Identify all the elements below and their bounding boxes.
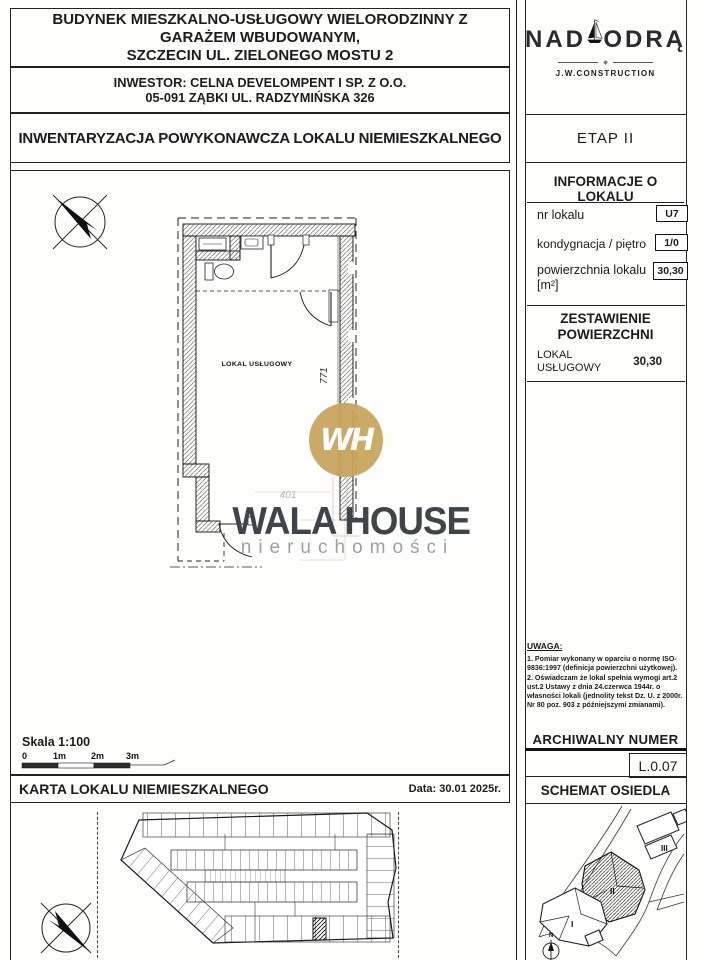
building-iii-label: III — [661, 844, 668, 853]
wh-monogram: WH — [320, 423, 372, 458]
north-label: N — [549, 933, 553, 939]
card-title: KARTA LOKALU NIEMIESZKALNEGO — [19, 781, 269, 797]
document-title-box: INWENTARYZACJA POWYKONAWCZA LOKALU NIEMI… — [10, 113, 510, 163]
card-date: Data: 30.01 2025r. — [409, 783, 501, 795]
info-value-powierzchnia: 30,30 — [653, 262, 688, 280]
summary-rule — [527, 381, 685, 382]
scale-tick-3: 3m — [126, 751, 139, 761]
building-i-label: I — [571, 919, 573, 929]
notes-item-1: 1. Pomiar wykonany w oparciu o normę ISO… — [527, 655, 683, 673]
inventory-card-page: BUDYNEK MIESZKALNO-USŁUGOWY WIELORODZINN… — [0, 0, 704, 960]
logo-divider-line — [613, 62, 653, 63]
toilet-bowl-icon — [215, 264, 234, 279]
toilet-tank-icon — [205, 263, 213, 280]
info-value-nr-lokalu: U7 — [656, 205, 688, 222]
summary-title: ZESTAWIENIE POWIERZCHNI — [525, 311, 686, 343]
building-ii-label: II — [610, 886, 615, 896]
info-panel-title: INFORMACJE O LOKALU — [525, 180, 686, 198]
info-label-powierzchnia: powierzchnia lokalu [m²] — [537, 263, 647, 293]
logo-text-nad: NAD — [525, 26, 586, 54]
scale-label: Skala 1:100 — [22, 735, 90, 749]
watermark-subtitle: nieruchomości — [225, 537, 470, 559]
column-divider-left — [516, 0, 517, 960]
logo-wordmark: NAD ODRĄ — [525, 10, 686, 54]
compass-rose-icon — [40, 182, 120, 262]
investor-box: INWESTOR: CELNA DEVELOMPENT I SP. Z O.O.… — [10, 67, 510, 113]
info-title-underline — [527, 202, 684, 203]
building-title-line3: SZCZECIN UL. ZIELONEGO MOSTU 2 — [127, 47, 394, 65]
archive-underline — [525, 748, 686, 751]
card-footer-row: KARTA LOKALU NIEMIESZKALNEGO Data: 30.01… — [10, 775, 510, 803]
stage-box: ETAP II — [525, 114, 686, 163]
notes-title: UWAGA: — [527, 641, 683, 651]
info-rule — [527, 305, 685, 306]
logo-ornament-icon: ◆ — [603, 59, 608, 66]
building-title-line1: BUDYNEK MIESZKALNO-USŁUGOWY WIELORODZINN… — [52, 11, 467, 29]
archive-title-text: ARCHIWALNY NUMER — [533, 732, 679, 747]
notes-block: UWAGA: 1. Pomiar wykonany w oparciu o no… — [527, 641, 683, 710]
archive-number-box: L.0.07 — [629, 753, 687, 778]
investor-line2: 05-091 ZĄBKI UL. RADZYMIŃSKA 326 — [145, 90, 374, 106]
sailboat-icon — [586, 12, 603, 54]
site-plan-title: SCHEMAT OSIEDLA — [541, 783, 671, 798]
site-plan-title-box: SCHEMAT OSIEDLA — [525, 776, 686, 804]
watermark-monogram-badge: WH — [309, 403, 383, 477]
compass-rose-bottom-icon — [34, 896, 98, 960]
building-title-box: BUDYNEK MIESZKALNO-USŁUGOWY WIELORODZINN… — [10, 8, 510, 67]
scale-tick-0: 0 — [22, 751, 27, 761]
building-title-line2: GARAŻEM WBUDOWANYM, — [160, 29, 360, 47]
dimension-height: 771 — [319, 367, 330, 384]
info-label-nr-lokalu: nr lokalu — [537, 208, 584, 222]
highlighted-unit — [313, 918, 326, 940]
info-label-kondygnacja: kondygnacja / piętro — [537, 237, 646, 251]
notes-item-2: 2. Oświadczam że lokal spełnia wymogi ar… — [527, 674, 683, 710]
summary-title-line1: ZESTAWIENIE — [560, 311, 651, 327]
logo-company: J.W.CONSTRUCTION — [525, 69, 686, 78]
archive-title: ARCHIWALNY NUMER — [525, 731, 686, 747]
scale-bar: 0 1m 2m 3m — [20, 750, 190, 774]
info-value-kondygnacja: 1/0 — [655, 234, 688, 251]
scale-tick-1: 1m — [53, 751, 66, 761]
summary-item-value: 30,30 — [590, 356, 662, 368]
logo-divider: ◆ — [525, 59, 686, 66]
room-label: LOKAL USŁUGOWY — [222, 361, 293, 368]
investor-line1: INWESTOR: CELNA DEVELOMPENT I SP. Z O.O. — [114, 75, 407, 91]
info-panel-title-text: INFORMACJE O LOKALU — [525, 174, 686, 204]
building-overview-plan — [105, 810, 401, 956]
developer-logo: NAD ODRĄ ◆ J.W.CONSTRUCTION — [525, 10, 686, 114]
scale-tick-2: 2m — [91, 751, 104, 761]
summary-title-line2: POWIERZCHNI — [558, 327, 654, 343]
logo-divider-line — [558, 62, 598, 63]
stage-label: ETAP II — [577, 130, 634, 147]
site-plan-map: III II I N — [525, 804, 686, 960]
document-title: INWENTARYZACJA POWYKONAWCZA LOKALU NIEMI… — [18, 130, 501, 147]
logo-text-odra: ODRĄ — [603, 26, 686, 54]
page-right-border — [686, 0, 687, 960]
archive-number: L.0.07 — [639, 758, 678, 774]
